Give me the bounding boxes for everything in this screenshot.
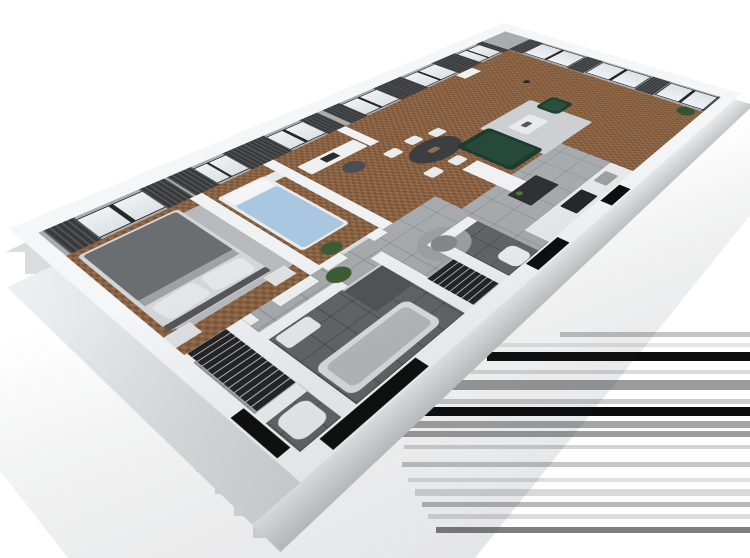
floorplan-image [0, 0, 750, 558]
